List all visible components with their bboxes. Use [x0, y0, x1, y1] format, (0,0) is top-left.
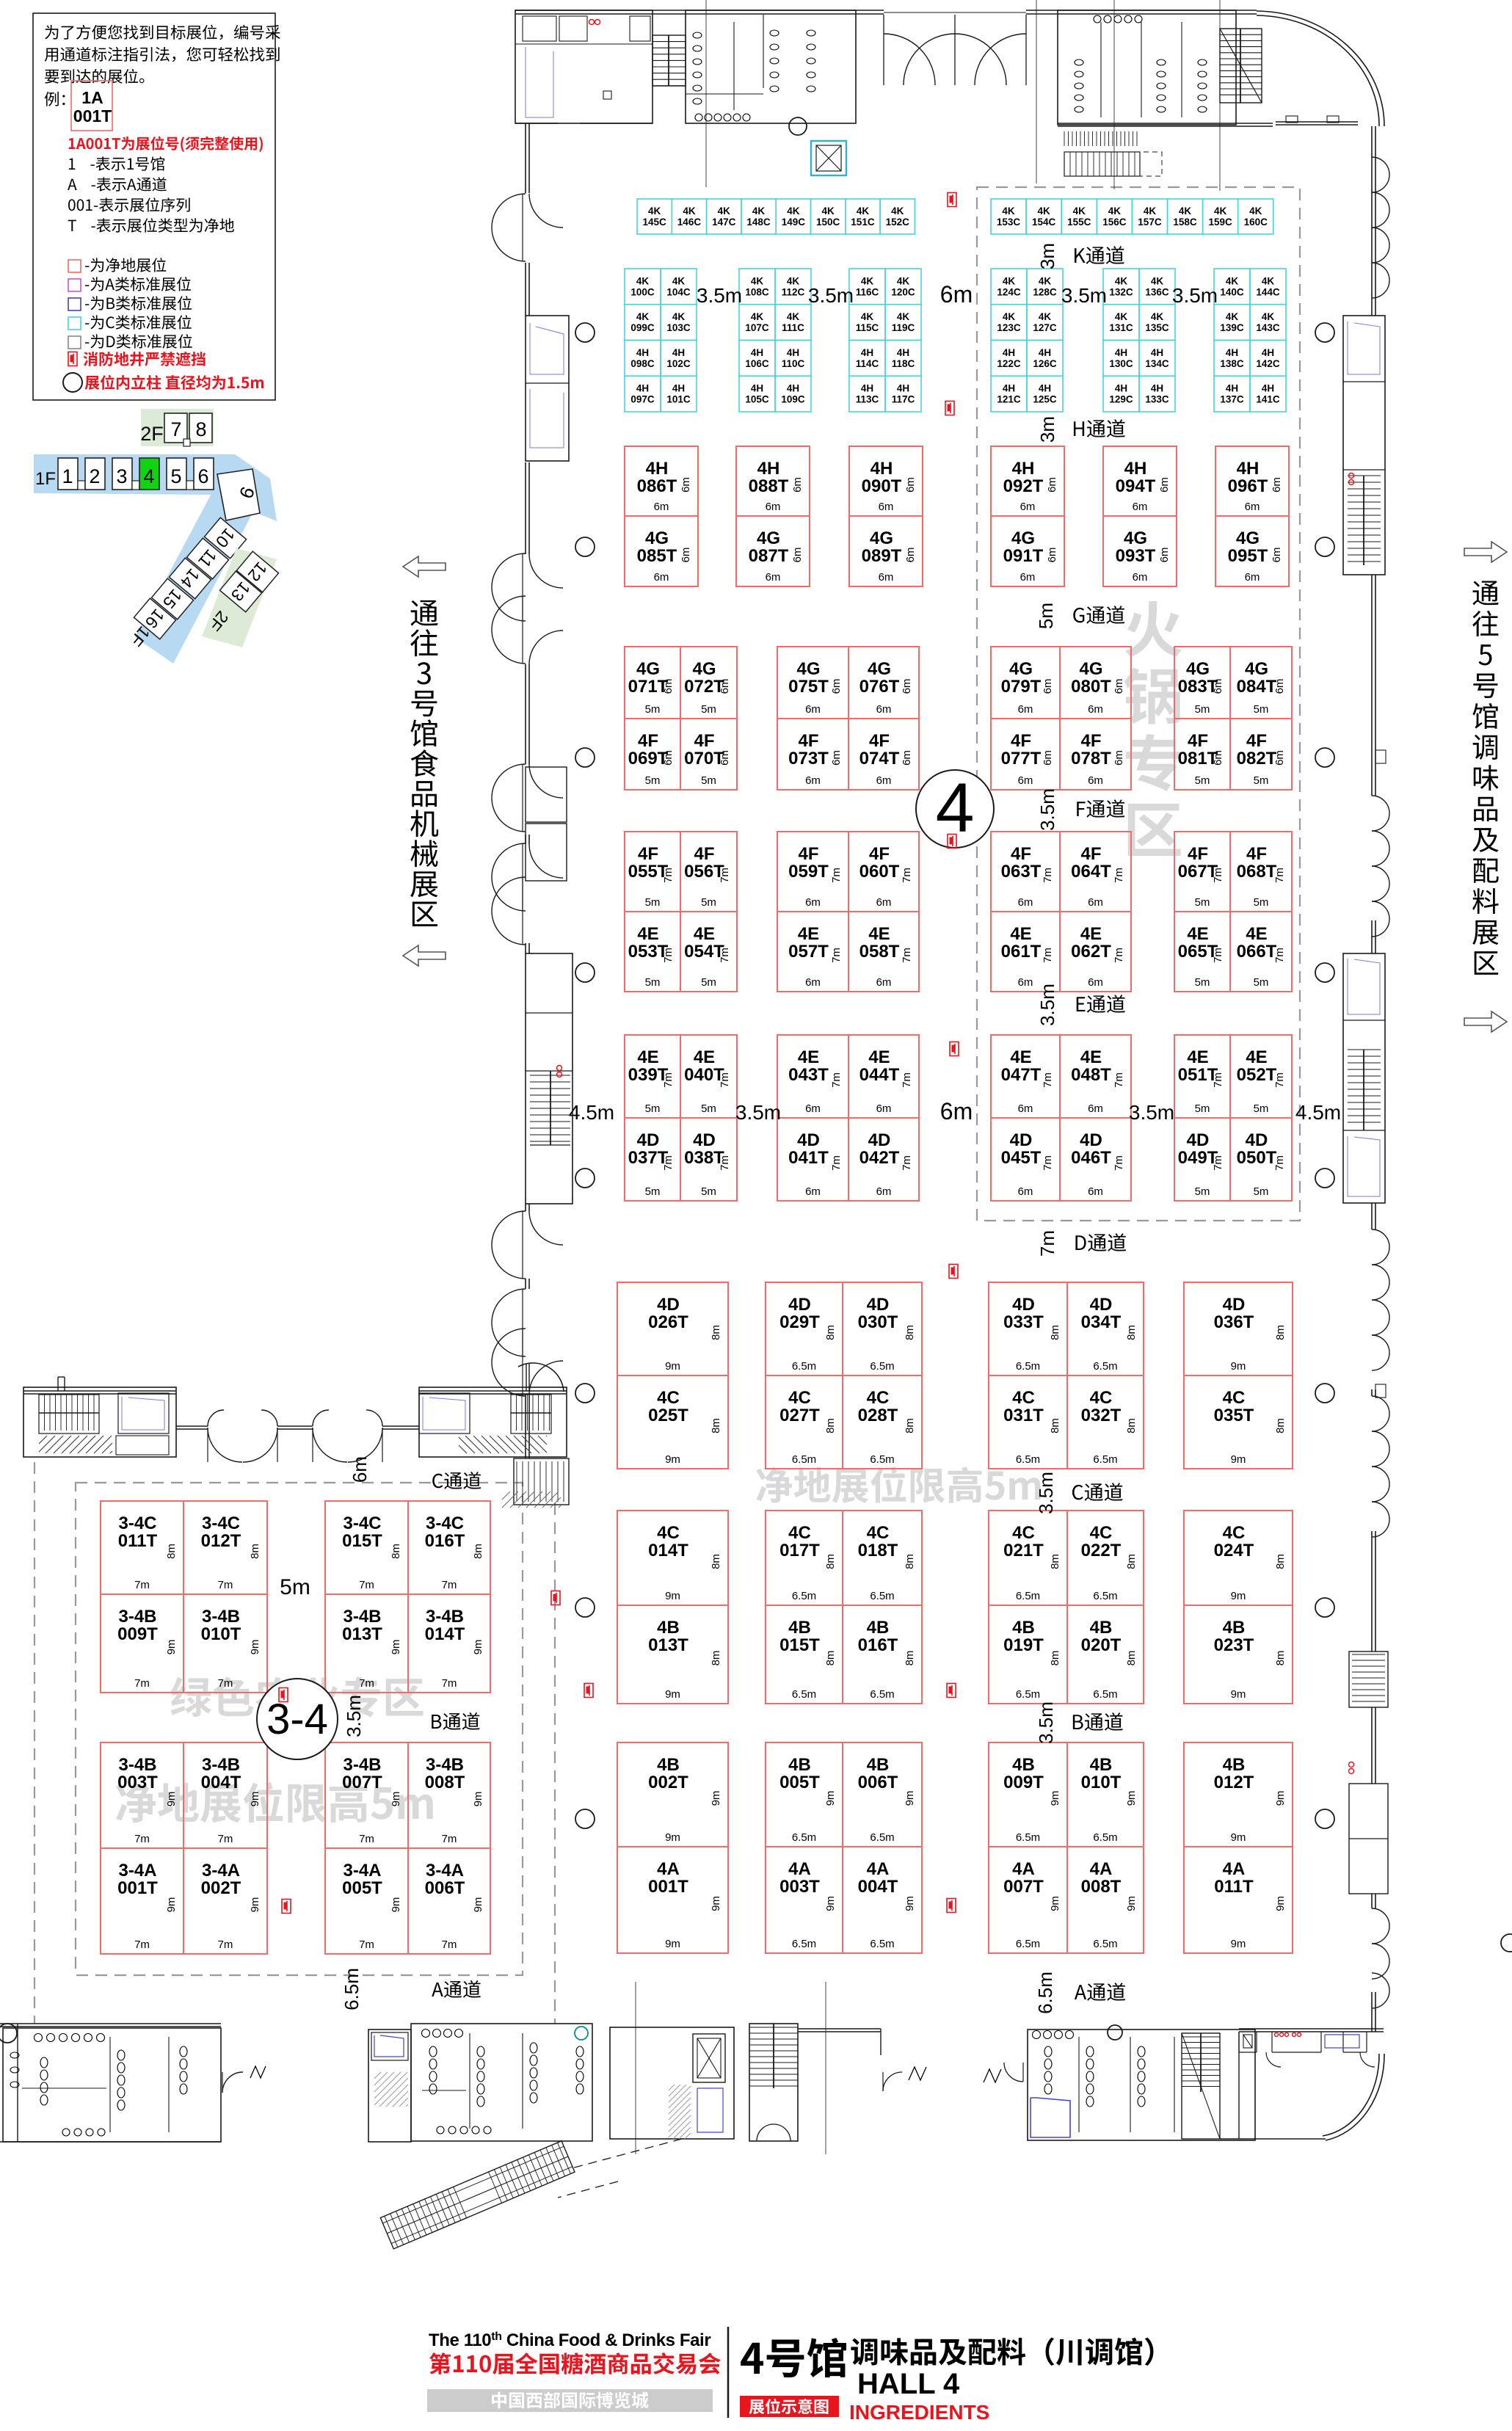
svg-text:3-4B: 3-4B: [426, 1607, 464, 1627]
svg-text:3-4A: 3-4A: [118, 1861, 156, 1881]
svg-text:045T: 045T: [1001, 1148, 1042, 1168]
svg-text:4F: 4F: [1246, 844, 1267, 864]
svg-text:020T: 020T: [1081, 1635, 1122, 1655]
svg-text:7m: 7m: [218, 1579, 233, 1591]
svg-text:7m: 7m: [134, 1677, 150, 1690]
svg-text:2F: 2F: [140, 423, 164, 445]
svg-text:3: 3: [116, 465, 127, 487]
svg-text:6m: 6m: [876, 1185, 892, 1198]
svg-text:074T: 074T: [859, 749, 900, 768]
svg-text:5m: 5m: [1195, 774, 1210, 787]
svg-text:5m: 5m: [701, 976, 716, 989]
svg-text:5m: 5m: [701, 1185, 716, 1198]
svg-text:141C: 141C: [1256, 394, 1280, 405]
svg-text:104C: 104C: [666, 286, 691, 297]
svg-text:6m: 6m: [1018, 774, 1033, 787]
svg-text:8m: 8m: [1049, 1325, 1061, 1340]
svg-text:4H: 4H: [871, 459, 893, 479]
svg-text:7m: 7m: [1212, 1072, 1224, 1088]
svg-text:016T: 016T: [425, 1531, 465, 1551]
svg-text:4E: 4E: [1010, 924, 1031, 944]
svg-text:5m: 5m: [645, 896, 661, 909]
svg-text:114C: 114C: [856, 358, 879, 369]
svg-text:013T: 013T: [648, 1635, 688, 1655]
svg-text:6m: 6m: [1133, 571, 1148, 584]
svg-text:3.5m: 3.5m: [1172, 284, 1218, 307]
svg-text:148C: 148C: [746, 217, 771, 228]
svg-text:7m: 7m: [442, 1579, 457, 1591]
svg-text:4G: 4G: [796, 659, 820, 679]
svg-text:6m: 6m: [1046, 548, 1058, 563]
svg-text:8m: 8m: [1125, 1418, 1138, 1433]
svg-text:6m: 6m: [805, 1185, 821, 1198]
svg-text:4C: 4C: [788, 1523, 811, 1543]
svg-text:113C: 113C: [856, 394, 879, 405]
svg-text:4H: 4H: [897, 383, 909, 394]
svg-text:7m: 7m: [662, 948, 675, 963]
svg-text:031T: 031T: [1003, 1406, 1044, 1425]
svg-text:4H: 4H: [757, 459, 780, 479]
svg-text:7m: 7m: [218, 1833, 233, 1845]
svg-text:7m: 7m: [662, 1072, 675, 1088]
svg-text:9m: 9m: [1231, 1360, 1246, 1373]
svg-text:4H: 4H: [1012, 459, 1035, 479]
svg-text:063T: 063T: [1001, 862, 1042, 882]
svg-text:6m: 6m: [1271, 548, 1283, 563]
svg-text:4F: 4F: [798, 844, 818, 864]
svg-text:7m: 7m: [830, 1155, 843, 1171]
svg-text:122C: 122C: [997, 358, 1021, 369]
svg-text:006T: 006T: [858, 1773, 898, 1792]
svg-text:027T: 027T: [779, 1406, 820, 1425]
svg-text:2: 2: [89, 465, 100, 487]
svg-text:130C: 130C: [1109, 358, 1133, 369]
svg-text:5m: 5m: [701, 1102, 716, 1115]
svg-text:8m: 8m: [710, 1325, 722, 1340]
svg-text:4D: 4D: [1246, 1130, 1268, 1150]
svg-text:7m: 7m: [218, 1938, 233, 1951]
svg-text:4D: 4D: [867, 1295, 890, 1315]
svg-text:6m: 6m: [766, 571, 781, 584]
svg-text:149C: 149C: [782, 217, 806, 228]
svg-text:4.5m: 4.5m: [569, 1101, 614, 1124]
svg-text:9m: 9m: [665, 1688, 680, 1701]
svg-text:046T: 046T: [1071, 1148, 1111, 1168]
svg-text:5m: 5m: [1195, 1185, 1210, 1198]
svg-text:4K: 4K: [1038, 206, 1051, 217]
svg-text:9m: 9m: [472, 1640, 484, 1655]
svg-text:035T: 035T: [1214, 1406, 1254, 1425]
svg-text:006T: 006T: [425, 1878, 465, 1898]
svg-text:1: 1: [62, 465, 73, 487]
svg-text:4C: 4C: [657, 1388, 680, 1408]
svg-text:6.5m: 6.5m: [870, 1831, 894, 1844]
svg-text:6m: 6m: [1273, 750, 1286, 766]
svg-text:6m: 6m: [1245, 571, 1260, 584]
svg-text:8m: 8m: [904, 1554, 916, 1569]
svg-text:3.5m: 3.5m: [1129, 1101, 1174, 1124]
svg-text:093T: 093T: [1116, 546, 1156, 566]
svg-text:4K: 4K: [1115, 275, 1128, 286]
svg-text:8m: 8m: [710, 1418, 722, 1433]
svg-text:9m: 9m: [904, 1791, 916, 1806]
svg-text:4K: 4K: [891, 206, 904, 217]
svg-text:4H: 4H: [787, 383, 799, 394]
svg-text:143C: 143C: [1256, 322, 1280, 333]
svg-text:001T: 001T: [73, 106, 112, 126]
svg-text:6.5m: 6.5m: [870, 1590, 894, 1602]
svg-text:9m: 9m: [165, 1897, 178, 1913]
svg-text:4H: 4H: [636, 383, 649, 394]
svg-text:3-4: 3-4: [266, 1696, 328, 1743]
svg-text:4G: 4G: [1009, 659, 1033, 679]
svg-text:4K: 4K: [672, 275, 686, 286]
svg-text:4H: 4H: [1262, 347, 1274, 358]
svg-text:4K: 4K: [1262, 275, 1275, 286]
svg-text:098C: 098C: [630, 358, 655, 369]
svg-text:4E: 4E: [694, 924, 715, 944]
svg-text:5m: 5m: [1254, 896, 1269, 909]
svg-text:001T: 001T: [648, 1877, 688, 1897]
svg-text:4G: 4G: [870, 528, 893, 548]
svg-text:008T: 008T: [1081, 1877, 1122, 1897]
svg-text:6.5m: 6.5m: [792, 1938, 816, 1950]
svg-text:3m: 3m: [1036, 243, 1058, 269]
svg-text:4K: 4K: [1179, 206, 1192, 217]
svg-text:4K: 4K: [861, 311, 874, 322]
svg-text:6m: 6m: [791, 548, 804, 563]
svg-text:3-4C: 3-4C: [202, 1514, 240, 1533]
svg-text:014T: 014T: [648, 1541, 688, 1560]
svg-text:4G: 4G: [1124, 528, 1147, 548]
svg-text:9m: 9m: [1125, 1896, 1138, 1911]
svg-text:4F: 4F: [1246, 731, 1267, 751]
svg-text:4F: 4F: [1080, 844, 1101, 864]
svg-text:3-4B: 3-4B: [118, 1607, 156, 1627]
svg-text:028T: 028T: [858, 1406, 898, 1425]
svg-text:017T: 017T: [779, 1541, 820, 1560]
svg-text:6m: 6m: [879, 571, 894, 584]
svg-text:139C: 139C: [1220, 322, 1244, 333]
svg-text:4E: 4E: [1246, 1047, 1267, 1067]
svg-text:016T: 016T: [858, 1635, 898, 1655]
svg-text:4K: 4K: [751, 275, 764, 286]
svg-text:7m: 7m: [1042, 1155, 1054, 1171]
svg-text:4H: 4H: [897, 347, 909, 358]
svg-text:008T: 008T: [425, 1773, 465, 1792]
svg-text:4F: 4F: [1011, 844, 1031, 864]
svg-text:120C: 120C: [891, 286, 915, 297]
svg-text:4H: 4H: [646, 459, 669, 479]
svg-text:9m: 9m: [665, 1453, 680, 1466]
svg-text:004T: 004T: [858, 1877, 898, 1897]
svg-text:7m: 7m: [359, 1833, 374, 1845]
svg-text:062T: 062T: [1071, 942, 1111, 962]
svg-text:078T: 078T: [1071, 749, 1111, 768]
svg-text:4F: 4F: [798, 731, 818, 751]
svg-text:152C: 152C: [886, 217, 910, 228]
svg-text:6m: 6m: [680, 548, 692, 563]
svg-text:119C: 119C: [892, 322, 915, 333]
svg-text:6.5m: 6.5m: [792, 1360, 816, 1373]
svg-text:4D: 4D: [1223, 1295, 1246, 1315]
svg-text:6m: 6m: [876, 896, 892, 909]
svg-text:8m: 8m: [710, 1554, 722, 1569]
svg-text:INGREDIENTS: INGREDIENTS: [849, 2401, 989, 2424]
svg-text:061T: 061T: [1001, 942, 1042, 962]
svg-text:7m: 7m: [830, 1072, 843, 1088]
svg-text:013T: 013T: [342, 1624, 382, 1644]
svg-text:6.5m: 6.5m: [1093, 1688, 1117, 1701]
svg-text:6m: 6m: [654, 501, 669, 513]
svg-text:4K: 4K: [1003, 311, 1016, 322]
svg-text:050T: 050T: [1237, 1148, 1277, 1168]
svg-text:012T: 012T: [1214, 1773, 1254, 1792]
svg-text:6.5m: 6.5m: [1093, 1938, 1117, 1950]
svg-text:4G: 4G: [757, 528, 780, 548]
svg-text:073T: 073T: [788, 749, 829, 768]
svg-text:9m: 9m: [1049, 1896, 1061, 1911]
svg-text:036T: 036T: [1214, 1312, 1254, 1332]
svg-text:6m: 6m: [876, 774, 892, 787]
svg-text:4: 4: [936, 769, 975, 847]
svg-text:101C: 101C: [666, 394, 691, 405]
svg-text:4C: 4C: [1012, 1523, 1035, 1543]
svg-text:7m: 7m: [719, 868, 731, 883]
svg-text:9m: 9m: [1231, 1831, 1246, 1844]
svg-text:4H: 4H: [1124, 459, 1147, 479]
svg-text:159C: 159C: [1209, 217, 1233, 228]
svg-text:6m: 6m: [1158, 477, 1171, 493]
svg-text:019T: 019T: [1003, 1635, 1044, 1655]
svg-text:4A: 4A: [1012, 1859, 1035, 1879]
svg-text:075T: 075T: [788, 677, 829, 697]
svg-text:6m: 6m: [876, 703, 892, 716]
svg-text:7m: 7m: [442, 1833, 457, 1845]
svg-text:8m: 8m: [472, 1544, 484, 1559]
svg-text:084T: 084T: [1237, 677, 1277, 697]
svg-text:6.5m: 6.5m: [870, 1360, 894, 1373]
svg-text:6m: 6m: [805, 976, 821, 989]
svg-text:151C: 151C: [851, 217, 875, 228]
svg-text:116C: 116C: [856, 286, 879, 297]
svg-text:011T: 011T: [1214, 1877, 1254, 1897]
svg-text:024T: 024T: [1214, 1541, 1254, 1560]
svg-text:043T: 043T: [788, 1065, 829, 1085]
svg-text:4A: 4A: [867, 1859, 890, 1879]
svg-text:4K: 4K: [861, 275, 874, 286]
svg-text:034T: 034T: [1081, 1312, 1122, 1332]
svg-text:4H: 4H: [672, 347, 685, 358]
svg-text:9m: 9m: [710, 1791, 722, 1806]
svg-text:111C: 111C: [782, 322, 804, 333]
svg-text:4K: 4K: [1073, 206, 1086, 217]
svg-text:4D: 4D: [1012, 1295, 1035, 1315]
svg-text:4C: 4C: [867, 1388, 890, 1408]
svg-text:8m: 8m: [1049, 1651, 1061, 1666]
svg-text:6m: 6m: [1088, 1102, 1103, 1115]
svg-text:4H: 4H: [1151, 347, 1163, 358]
svg-text:4C: 4C: [657, 1523, 680, 1543]
svg-text:115C: 115C: [856, 322, 879, 333]
svg-text:7m: 7m: [719, 948, 731, 963]
svg-text:4K: 4K: [672, 311, 686, 322]
svg-text:8m: 8m: [824, 1418, 837, 1433]
svg-text:4E: 4E: [694, 1047, 715, 1067]
svg-text:140C: 140C: [1220, 286, 1244, 297]
svg-text:100C: 100C: [630, 286, 655, 297]
svg-text:4B: 4B: [1012, 1755, 1035, 1775]
svg-text:5m: 5m: [645, 1102, 661, 1115]
svg-text:6m: 6m: [1018, 976, 1033, 989]
svg-text:7m: 7m: [830, 948, 843, 963]
svg-text:4D: 4D: [788, 1295, 811, 1315]
svg-text:9m: 9m: [390, 1792, 402, 1807]
svg-text:9m: 9m: [249, 1897, 261, 1913]
svg-text:6m: 6m: [1273, 679, 1286, 694]
svg-text:9m: 9m: [165, 1640, 178, 1655]
svg-text:6m: 6m: [1018, 703, 1033, 716]
svg-text:6m: 6m: [1088, 976, 1103, 989]
svg-text:4K: 4K: [1249, 206, 1262, 217]
svg-text:011T: 011T: [118, 1531, 158, 1551]
svg-text:142C: 142C: [1256, 358, 1280, 369]
svg-text:8m: 8m: [1125, 1651, 1138, 1666]
svg-text:137C: 137C: [1220, 394, 1244, 405]
svg-text:6m: 6m: [904, 548, 917, 563]
svg-text:033T: 033T: [1003, 1312, 1044, 1332]
svg-text:6.5m: 6.5m: [1016, 1590, 1040, 1602]
svg-text:068T: 068T: [1237, 862, 1277, 882]
svg-text:3.5m: 3.5m: [697, 284, 742, 307]
svg-text:041T: 041T: [788, 1148, 829, 1168]
svg-text:4K: 4K: [1226, 275, 1239, 286]
svg-text:009T: 009T: [117, 1624, 158, 1644]
svg-text:4K: 4K: [1151, 275, 1164, 286]
svg-text:6.5m: 6.5m: [870, 1453, 894, 1466]
svg-text:7m: 7m: [1273, 868, 1286, 883]
svg-text:6m: 6m: [662, 679, 675, 694]
svg-text:4F: 4F: [1188, 844, 1208, 864]
svg-text:018T: 018T: [858, 1541, 898, 1560]
svg-text:5m: 5m: [645, 1185, 661, 1198]
svg-text:3-4A: 3-4A: [343, 1861, 381, 1881]
svg-text:110C: 110C: [782, 358, 805, 369]
svg-text:6m: 6m: [904, 477, 917, 493]
svg-text:4H: 4H: [861, 383, 873, 394]
svg-text:7m: 7m: [719, 1072, 731, 1088]
svg-text:7m: 7m: [1273, 1072, 1286, 1088]
svg-text:7m: 7m: [359, 1579, 374, 1591]
svg-text:6m: 6m: [1020, 501, 1036, 513]
svg-text:9m: 9m: [1049, 1791, 1061, 1806]
svg-text:4H: 4H: [1151, 383, 1163, 394]
svg-text:6.5m: 6.5m: [1093, 1360, 1117, 1373]
svg-text:4F: 4F: [869, 844, 890, 864]
svg-text:7m: 7m: [1273, 1155, 1286, 1171]
svg-text:007T: 007T: [1003, 1877, 1044, 1897]
svg-text:9m: 9m: [665, 1590, 680, 1602]
svg-text:6m: 6m: [830, 679, 843, 694]
svg-text:085T: 085T: [637, 546, 677, 566]
svg-text:7m: 7m: [719, 1155, 731, 1171]
svg-text:5m: 5m: [1254, 774, 1269, 787]
svg-text:4K: 4K: [897, 311, 910, 322]
svg-text:4K: 4K: [751, 311, 764, 322]
svg-text:6.5m: 6.5m: [792, 1453, 816, 1466]
svg-text:007T: 007T: [342, 1773, 382, 1792]
svg-text:7m: 7m: [1042, 948, 1054, 963]
svg-text:123C: 123C: [997, 322, 1021, 333]
svg-text:3.5m: 3.5m: [343, 1695, 365, 1737]
svg-text:6m: 6m: [1020, 571, 1036, 584]
svg-text:3-4A: 3-4A: [426, 1861, 464, 1881]
svg-text:012T: 012T: [201, 1531, 241, 1551]
svg-text:002T: 002T: [648, 1773, 688, 1792]
svg-text:6.5m: 6.5m: [1093, 1453, 1117, 1466]
svg-text:8m: 8m: [710, 1651, 722, 1666]
svg-text:6m: 6m: [1088, 1185, 1103, 1198]
svg-text:8m: 8m: [1125, 1325, 1138, 1340]
svg-text:9m: 9m: [1231, 1590, 1246, 1602]
svg-text:7m: 7m: [1113, 1155, 1125, 1171]
svg-text:6m: 6m: [1018, 1185, 1033, 1198]
svg-text:6.5m: 6.5m: [792, 1688, 816, 1701]
svg-text:8m: 8m: [165, 1544, 178, 1559]
svg-text:147C: 147C: [712, 217, 736, 228]
svg-text:4H: 4H: [751, 383, 763, 394]
svg-text:010T: 010T: [201, 1624, 241, 1644]
svg-text:3-4B: 3-4B: [343, 1607, 381, 1627]
svg-text:4K: 4K: [683, 206, 696, 217]
svg-text:097C: 097C: [630, 394, 655, 405]
svg-text:6m: 6m: [940, 281, 973, 308]
svg-text:1A: 1A: [81, 88, 103, 107]
svg-text:4G: 4G: [1079, 659, 1102, 679]
svg-text:6m: 6m: [719, 679, 731, 694]
svg-text:3-4B: 3-4B: [202, 1607, 240, 1627]
svg-text:086T: 086T: [637, 476, 677, 496]
svg-text:4G: 4G: [1186, 659, 1210, 679]
svg-text:9m: 9m: [1231, 1938, 1246, 1950]
svg-text:6m: 6m: [876, 1102, 892, 1115]
svg-text:138C: 138C: [1220, 358, 1244, 369]
svg-text:108C: 108C: [745, 286, 769, 297]
svg-text:4K: 4K: [857, 206, 870, 217]
svg-text:6m: 6m: [1018, 896, 1033, 909]
svg-text:6: 6: [197, 465, 208, 487]
svg-text:4A: 4A: [788, 1859, 811, 1879]
svg-text:4H: 4H: [1226, 383, 1238, 394]
svg-text:3-4C: 3-4C: [426, 1514, 464, 1533]
svg-text:015T: 015T: [779, 1635, 820, 1655]
svg-text:6m: 6m: [1088, 774, 1103, 787]
svg-text:121C: 121C: [997, 394, 1021, 405]
svg-text:156C: 156C: [1102, 217, 1127, 228]
svg-text:6m: 6m: [654, 571, 669, 584]
svg-text:4C: 4C: [867, 1523, 890, 1543]
svg-text:3-4B: 3-4B: [202, 1755, 240, 1775]
svg-text:4E: 4E: [798, 924, 819, 944]
svg-text:4D: 4D: [1187, 1130, 1210, 1150]
svg-text:6m: 6m: [1042, 679, 1054, 694]
svg-text:4B: 4B: [1012, 1618, 1035, 1638]
svg-text:4A: 4A: [1223, 1859, 1246, 1879]
svg-text:4K: 4K: [897, 275, 910, 286]
svg-text:4K: 4K: [1151, 311, 1164, 322]
svg-text:9m: 9m: [1231, 1688, 1246, 1701]
svg-text:025T: 025T: [648, 1406, 688, 1425]
